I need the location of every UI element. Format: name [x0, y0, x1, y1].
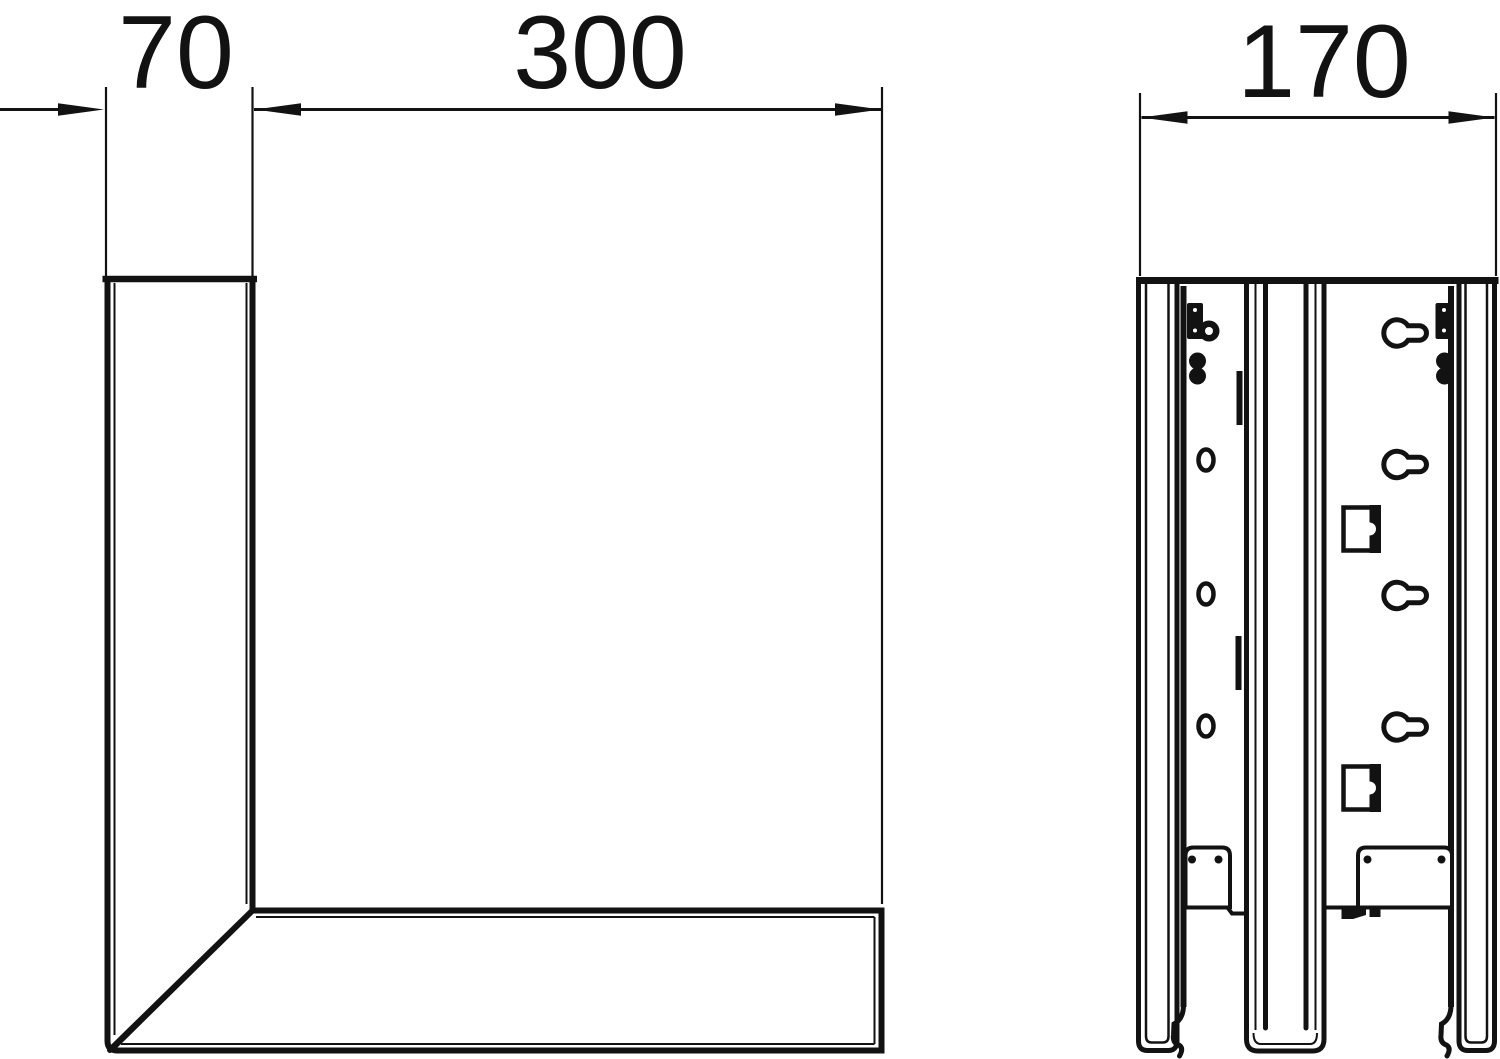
- dim-front-length-label: 300: [513, 0, 687, 111]
- arrowhead-right-icon: [835, 103, 881, 116]
- front-miter-seam: [110, 911, 253, 1051]
- clip-notch: [1363, 523, 1376, 536]
- dimension-front-length: 300: [254, 0, 882, 904]
- side-center-channel-inner-bottom: [1254, 1033, 1318, 1044]
- bracket-pin-dot: [1193, 329, 1197, 333]
- dim-side-depth-label: 170: [1237, 4, 1411, 120]
- rivet-dot: [1215, 856, 1223, 864]
- arrowhead-right-icon: [1449, 111, 1495, 124]
- keyhole-slot: [1384, 582, 1427, 608]
- side-right-wall-inner: [1466, 284, 1488, 1043]
- side-coupler-plates: [1184, 848, 1453, 920]
- latch-knob: [1189, 368, 1206, 385]
- arrowhead-right-icon: [58, 103, 104, 116]
- dimension-front-width: 70: [0, 0, 253, 276]
- coupler-plate-right: [1358, 848, 1452, 910]
- retainer-lug: [1370, 910, 1381, 918]
- side-mounting-details: [1187, 303, 1453, 812]
- rivet-dot: [1364, 856, 1372, 864]
- latch-knob: [1436, 368, 1453, 385]
- technical-drawing-canvas: 70 300: [0, 0, 1500, 1059]
- retaining-clip: [1344, 505, 1382, 553]
- duct-flat-angle-drawing: 70 300: [0, 0, 1500, 1059]
- keyhole-slot: [1384, 451, 1427, 477]
- bracket-ring-hole: [1205, 327, 1213, 335]
- dimension-side-depth: 170: [1140, 4, 1496, 276]
- rivet-dot: [1438, 856, 1446, 864]
- side-view-profile: [1136, 281, 1499, 1057]
- side-left-wall-inner: [1146, 284, 1169, 1043]
- bracket-pin-dot: [1442, 308, 1446, 312]
- arrowhead-left-icon: [255, 103, 301, 116]
- screw-hole: [1199, 716, 1214, 737]
- dim-front-width-label: 70: [118, 0, 234, 111]
- keyhole-slot: [1384, 320, 1427, 346]
- side-left-wall: [1139, 284, 1178, 1051]
- side-right-foot-hook: [1441, 1005, 1451, 1056]
- clip-notch: [1363, 782, 1376, 795]
- side-center-channel: [1247, 283, 1325, 1051]
- latch-knob: [1189, 353, 1206, 370]
- front-miter-seam-inner: [117, 918, 248, 1047]
- arrowhead-left-icon: [1142, 111, 1188, 124]
- bracket-pin-dot: [1193, 308, 1197, 312]
- keyhole-slot: [1384, 714, 1427, 740]
- plate-bottom-edge-left: [1184, 908, 1248, 914]
- screw-hole: [1199, 450, 1214, 471]
- front-view-flat-angle: [103, 279, 882, 1051]
- retainer-lug: [1342, 910, 1367, 920]
- retaining-clip: [1344, 764, 1382, 812]
- bracket-pin-dot: [1442, 329, 1446, 333]
- rivet-dot: [1188, 856, 1196, 864]
- screw-hole: [1199, 584, 1214, 605]
- latch-knob: [1436, 353, 1453, 370]
